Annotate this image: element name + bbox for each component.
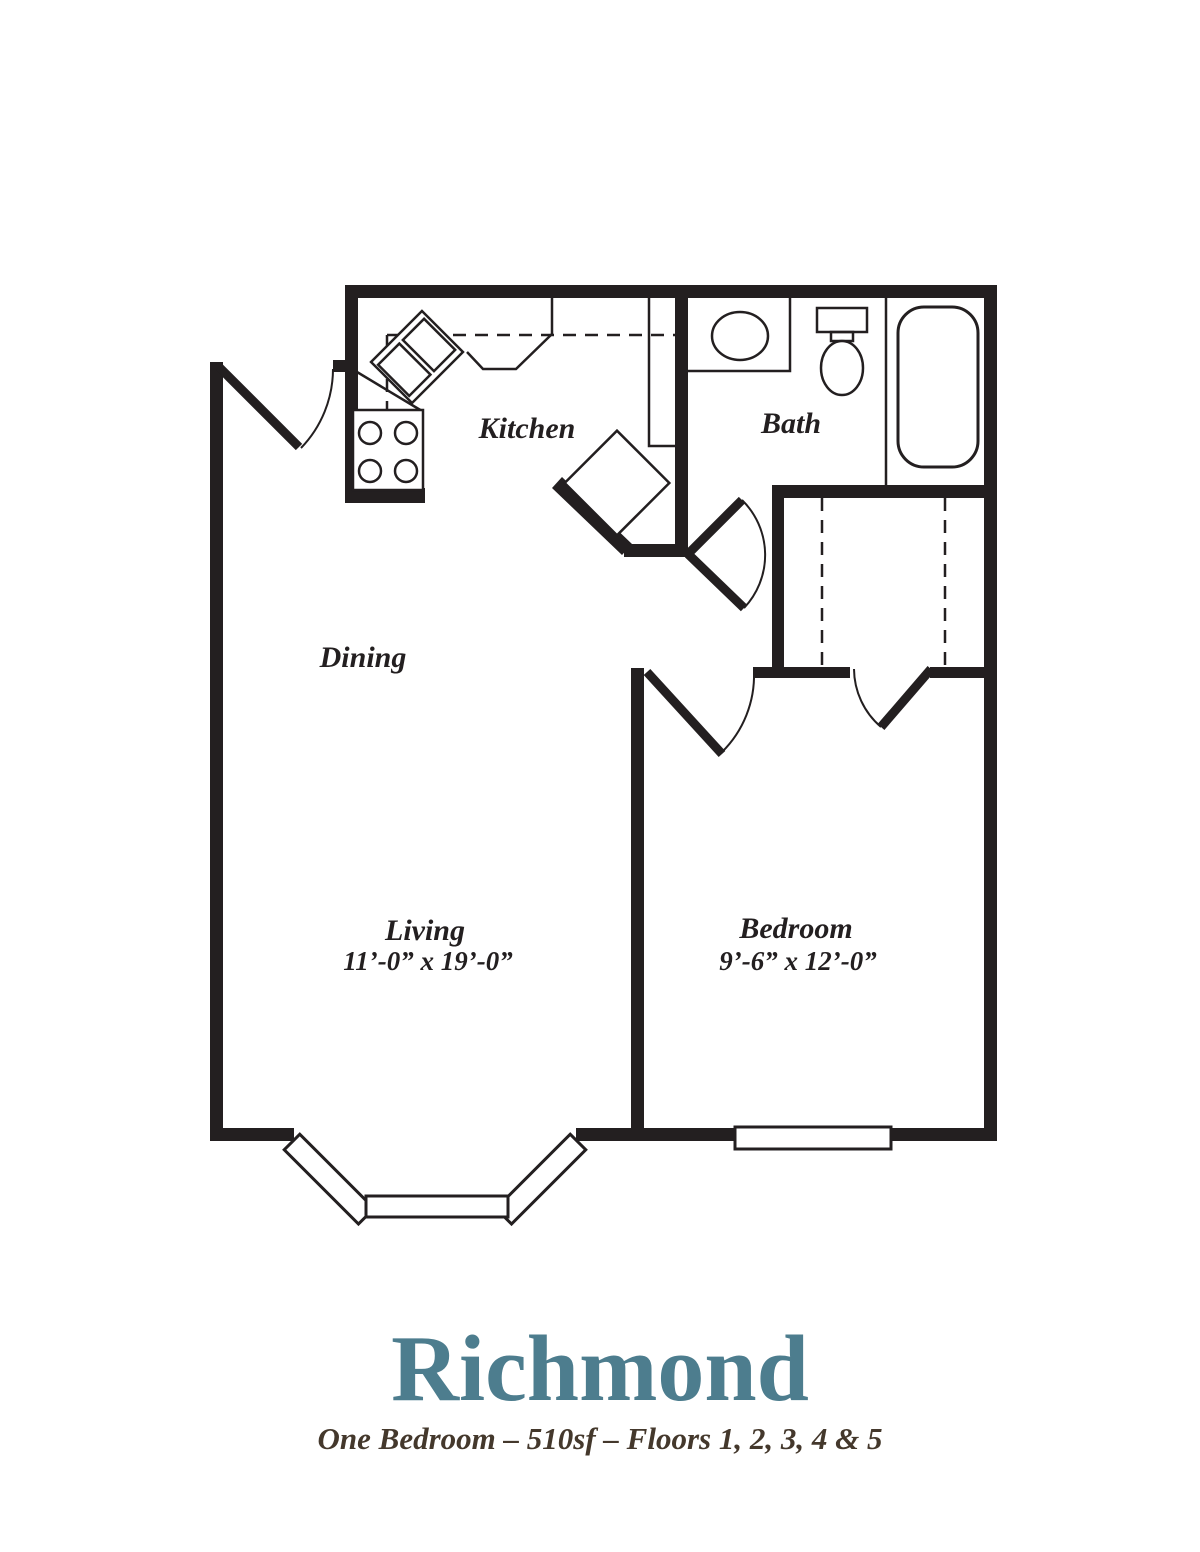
living-bedroom-wall [631,668,644,1141]
exterior-walls [210,285,997,1141]
bottom-wall-living-left [210,1128,294,1141]
vanity-sink-icon [688,298,790,371]
tub-basin [898,307,978,467]
left-wall [210,362,223,1141]
bath-door [688,500,765,608]
entry-door [219,367,333,448]
bathtub-icon [886,298,978,485]
bottom-wall-bedroom-left [631,1128,737,1141]
entry-door-strike-stub [333,360,346,372]
living-label: Living [384,914,465,947]
right-wall [984,285,997,1141]
closet-bottom-wall [753,667,850,678]
bath-door-leaf-upper [688,500,742,554]
toilet-bowl [821,341,863,395]
bay-window-center-pane [366,1196,508,1217]
plan-subtitle: One Bedroom – 510sf – Floors 1, 2, 3, 4 … [0,1421,1200,1457]
bath-door-swing-arc [742,500,765,608]
entry-door-swing-arc [301,369,333,448]
bedroom-label: Bedroom [738,912,852,945]
tall-cabinet-icon [649,298,675,446]
bay-window [284,1134,586,1224]
kitchen-bath-wall [675,285,688,557]
counter-edge-right [467,298,552,369]
top-wall [345,285,997,298]
bath-label: Bath [760,407,821,440]
closet-door-swing-arc [854,669,881,727]
bedroom-door-leaf [647,672,722,754]
toilet-neck [831,332,853,341]
plan-title: Richmond [0,1318,1200,1421]
dashed-lines [387,335,945,667]
closet-left-wall [772,490,784,678]
stove-body [353,410,423,490]
closet-door [854,669,931,727]
bottom-wall-bedroom-right [889,1128,997,1141]
stove-icon [353,410,423,490]
bay-window-left-pane [284,1134,374,1224]
living-dimensions: 11’-0” x 19’-0” [343,946,513,976]
bedroom-window [735,1127,891,1149]
floor-plan-drawing: Kitchen Bath Dining Living 11’-0” x 19’-… [0,0,1200,1260]
bedroom-dimensions: 9’-6” x 12’-0” [719,946,877,976]
bedroom-door [647,672,754,754]
vanity-basin [712,312,768,360]
bedroom-door-swing-arc [722,672,754,752]
floor-plan-page: Kitchen Bath Dining Living 11’-0” x 19’-… [0,0,1200,1552]
kitchen-label: Kitchen [478,412,576,445]
kitchen-bottom-wall [624,544,688,557]
closet-door-leaf [881,669,931,727]
toilet-icon [817,308,867,395]
entry-door-leaf [219,367,299,447]
dining-label: Dining [319,641,407,674]
bath-bottom-wall [772,485,997,498]
closet-bottom-stub [930,667,997,678]
bath-door-leaf-lower [688,554,744,608]
toilet-tank [817,308,867,332]
